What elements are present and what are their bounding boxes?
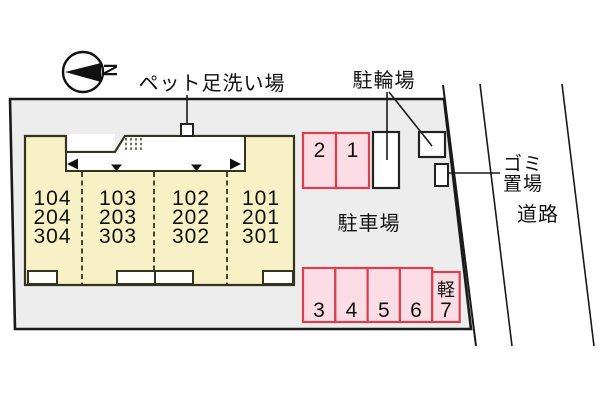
entrance-notch [155,271,193,284]
stall-number: 1 [347,139,359,162]
compass-letter: N [100,64,120,77]
room-number: 303 [99,225,137,248]
road-center-line [480,84,512,346]
compass-north-icon: N [63,52,120,92]
pet-wash-label: ペット足洗い場 [139,72,286,95]
bicycle-rack [373,132,399,188]
stall-number: 6 [410,299,422,322]
garbage-label-line2: 置場 [503,173,543,195]
entrance-notch [117,271,155,284]
garbage-label-line1: ゴミ [503,153,543,175]
room-number: 302 [172,225,210,248]
stall-number: 3 [313,299,325,322]
stall-number: 5 [378,299,390,322]
car-parking-label: 駐車場 [338,212,401,235]
entrance-notch [263,271,293,284]
room-number: 304 [33,225,71,248]
room-number: 301 [242,225,280,248]
road-label: 道路 [517,203,559,226]
site-plan-drawing: 104 204 304 103 203 303 102 202 302 101 … [0,0,600,400]
site-plan-canvas: 104 204 304 103 203 303 102 202 302 101 … [0,0,600,400]
entrance-notch [28,271,57,284]
bottom-parking-stalls: 3 4 5 6 [303,268,432,322]
stall-number: 2 [314,139,326,162]
bicycle-parking-label: 駐輪場 [353,69,416,92]
stall-number: 7 [440,299,452,322]
garbage-box [435,164,448,186]
road-far-line [562,84,594,346]
building-entry-recess [66,134,115,152]
kei-stall-label: 軽 [437,280,455,300]
stall-number: 4 [346,299,358,322]
pet-wash-station [181,124,193,136]
